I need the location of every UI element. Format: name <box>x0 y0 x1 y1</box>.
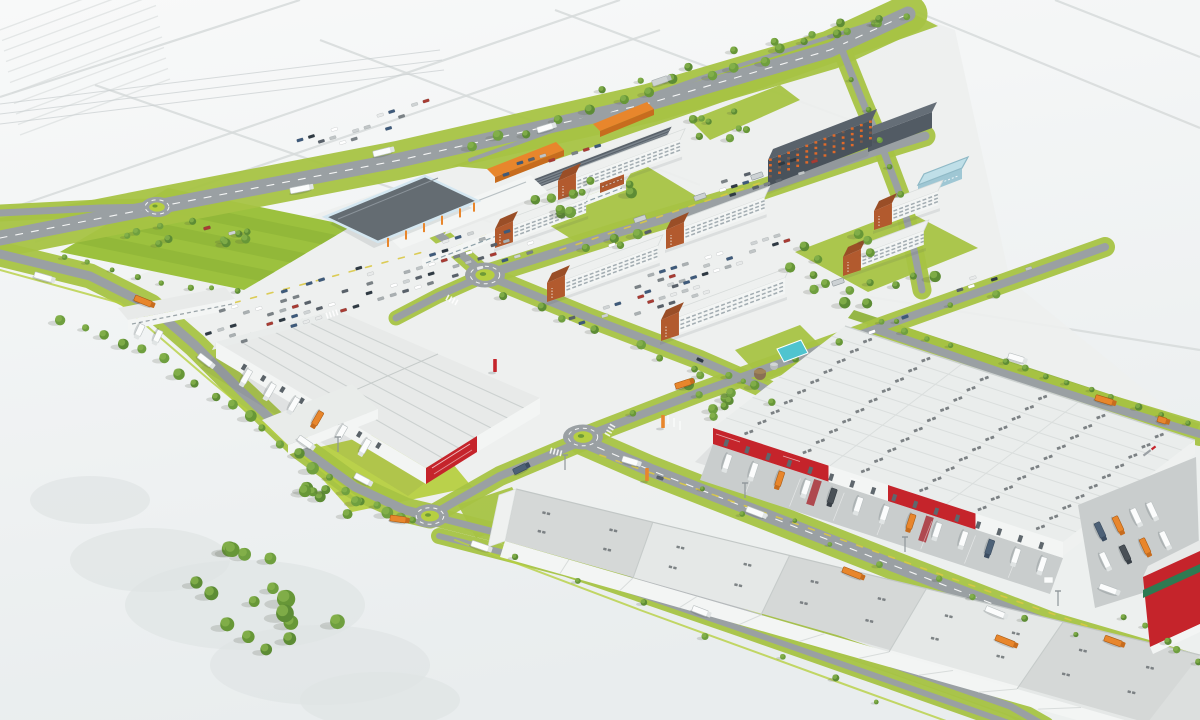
logistics-park-render <box>0 0 1200 720</box>
entrance-totem-sign <box>645 468 649 481</box>
roundabout <box>465 263 505 288</box>
roundabout <box>411 504 449 527</box>
entrance-totem-sign <box>661 415 665 428</box>
entrance-totem-sign <box>493 359 497 372</box>
roundabout <box>141 197 174 217</box>
roundabout <box>563 425 603 450</box>
aerial-render-viewport <box>0 0 1200 720</box>
gatehouse <box>1044 577 1053 583</box>
